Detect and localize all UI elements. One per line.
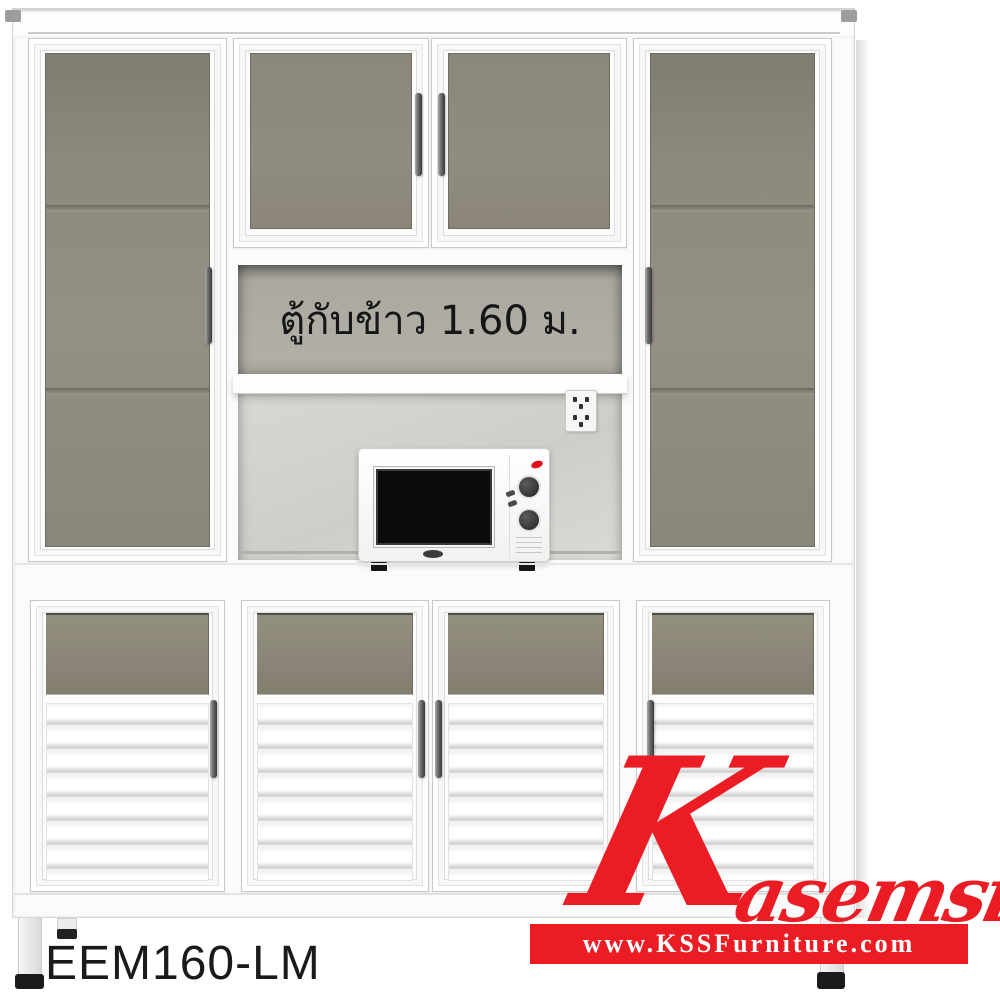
door-handle — [435, 700, 442, 778]
lower-door-4 — [636, 600, 830, 892]
section-divider — [12, 563, 855, 565]
cornice-cap-right — [841, 10, 857, 22]
shelf-edge — [46, 388, 209, 395]
door-handle — [647, 700, 654, 778]
door-glass-panel — [46, 613, 209, 695]
outlet-hole — [573, 397, 577, 402]
lower-door-2 — [241, 600, 429, 892]
website-banner: www.KSSFurniture.com — [530, 924, 968, 964]
door-glass — [448, 53, 610, 229]
door-handle — [438, 93, 445, 176]
lower-door-3 — [432, 600, 620, 892]
shelf-edge — [46, 205, 209, 212]
microwave-oven — [358, 448, 550, 562]
door-handle — [205, 267, 212, 344]
size-label-thai: ตู้กับข้าว 1.60 ม. — [279, 288, 580, 352]
door-glass-panel — [257, 613, 413, 695]
microwave-control-panel — [509, 455, 545, 559]
outlet-hole — [573, 415, 577, 420]
microwave-logo — [423, 550, 443, 558]
cabinet-leg-left — [18, 918, 42, 976]
shelf-edge — [651, 388, 814, 395]
microwave-power-knob — [519, 477, 539, 497]
bottom-apron-line — [12, 893, 855, 895]
door-handle — [418, 700, 425, 778]
cabinet-right-shadow — [856, 40, 870, 918]
microwave-panel-markings — [516, 537, 542, 555]
lower-door-1 — [30, 600, 225, 892]
outlet-hole — [579, 404, 583, 409]
louver-panel — [448, 703, 604, 881]
door-glass-panel — [448, 613, 604, 695]
upper-glass-door-right — [431, 38, 627, 248]
door-handle — [415, 93, 422, 176]
tall-glass-door-left — [28, 38, 227, 562]
outlet-hole — [585, 415, 589, 420]
microwave-timer-knob — [519, 510, 539, 530]
cornice-cap-left — [5, 10, 21, 22]
cornice-groove — [28, 32, 840, 34]
power-outlet — [565, 390, 597, 432]
open-shelf-niche: ตู้กับข้าว 1.60 ม. — [238, 265, 622, 374]
door-glass-panel — [652, 613, 814, 695]
louver-panel — [46, 703, 209, 881]
microwave-door-window — [374, 467, 494, 547]
microwave-indicator-light — [530, 459, 544, 469]
door-glass — [250, 53, 412, 229]
louver-panel — [652, 703, 814, 881]
door-handle — [645, 267, 652, 344]
leg-foot-left — [15, 974, 44, 989]
product-photo: ตู้กับข้าว 1.60 ม. — [0, 0, 1000, 1000]
louver-panel — [257, 703, 413, 881]
upper-glass-door-left — [233, 38, 429, 248]
door-glass — [45, 53, 210, 547]
outlet-hole — [585, 397, 589, 402]
door-handle — [210, 700, 217, 778]
outlet-hole — [579, 422, 583, 427]
leg-foot-right — [817, 972, 845, 989]
microwave-button — [507, 500, 517, 508]
tall-glass-door-right — [633, 38, 832, 562]
website-url: www.KSSFurniture.com — [583, 929, 916, 959]
door-glass — [650, 53, 815, 547]
microwave-button — [505, 490, 515, 498]
product-code: EEM160-LM — [45, 936, 321, 991]
shelf-edge — [651, 205, 814, 212]
